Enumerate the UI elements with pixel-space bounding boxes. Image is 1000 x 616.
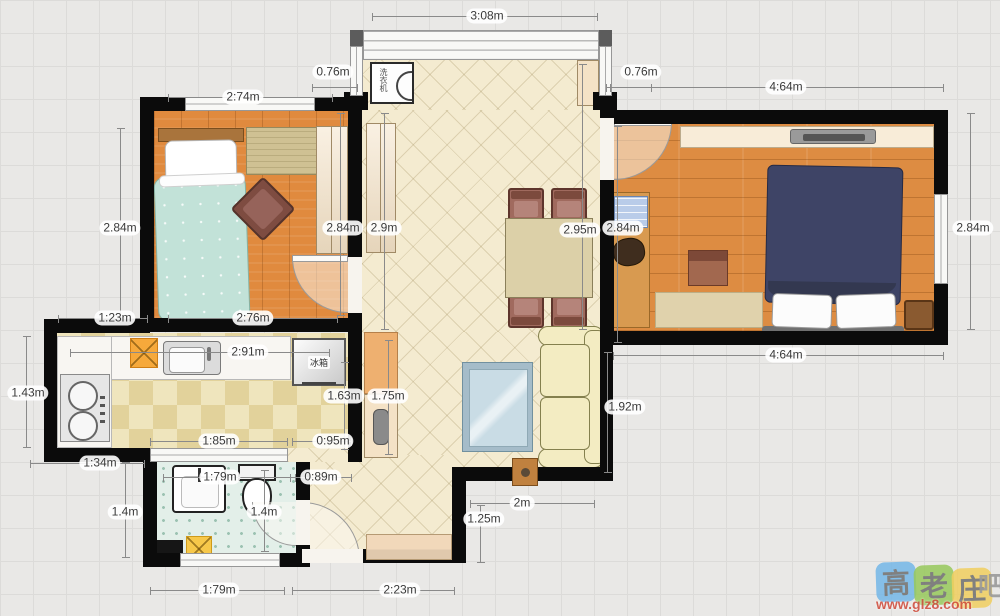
dimension-label: 2.84m <box>322 221 363 236</box>
watermark-url: www.glz8.com <box>858 596 990 612</box>
dimension-label: 3:08m <box>466 9 507 24</box>
dimension-label: 0.76m <box>620 65 661 80</box>
dimension-line <box>582 64 583 330</box>
dimension-label: 2.95m <box>559 223 600 238</box>
dimension-label: 2.84m <box>99 221 140 236</box>
dimension-label: 2.9m <box>367 221 402 236</box>
dimension-label: 1:23m <box>94 311 135 326</box>
dimension-line <box>340 113 341 316</box>
dimension-label: 1.4m <box>108 505 143 520</box>
dimension-label: 1:34m <box>79 456 120 471</box>
dimension-label: 1.92m <box>604 400 645 415</box>
watermark: 高老庄 吧 www.glz8.com <box>858 552 1000 614</box>
dimension-label: 0.76m <box>312 65 353 80</box>
dimension-label: 4:64m <box>765 348 806 363</box>
dimension-label: 1:79m <box>198 583 239 598</box>
dimension-label: 2:76m <box>232 311 273 326</box>
dimension-label: 1.4m <box>247 505 282 520</box>
dimension-label: 0:95m <box>312 434 353 449</box>
dimension-label: 2.84m <box>952 221 993 236</box>
dimension-line <box>292 590 455 591</box>
dimension-layer: 3:08m0.76m0.76m2:74m4:64m2.84m2.84m2.9m2… <box>0 0 1000 616</box>
dimension-label: 1.63m <box>323 389 364 404</box>
dimension-label: 2:23m <box>379 583 420 598</box>
dimension-label: 2.84m <box>602 221 643 236</box>
dimension-label: 1:79m <box>199 470 240 485</box>
dimension-line <box>70 352 330 353</box>
dimension-label: 2m <box>510 496 535 511</box>
dimension-label: 2:74m <box>222 90 263 105</box>
dimension-label: 2:91m <box>227 345 268 360</box>
dimension-label: 1.25m <box>463 512 504 527</box>
dimension-label: 0:89m <box>300 470 341 485</box>
dimension-line <box>312 87 358 88</box>
dimension-label: 1.75m <box>367 389 408 404</box>
dimension-label: 1.43m <box>7 386 48 401</box>
dimension-label: 4:64m <box>765 80 806 95</box>
floor-plan-canvas: 洗衣机 <box>0 0 1000 616</box>
dimension-label: 1:85m <box>198 434 239 449</box>
